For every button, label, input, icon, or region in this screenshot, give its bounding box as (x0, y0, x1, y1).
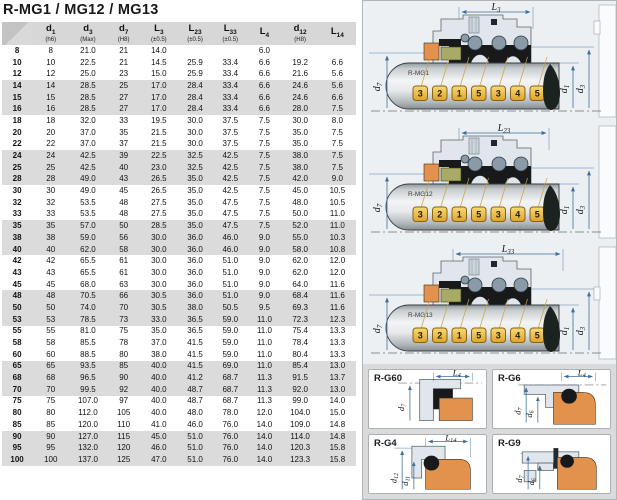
row-value-cell: 59.0 (213, 337, 247, 349)
row-value-cell: 99.5 (69, 384, 106, 396)
dim-label-d3: d3 (575, 84, 587, 93)
header-row: d1 (h6) d3 (Max) d7 (H8) L3 (±0.5) L23 (… (2, 22, 356, 45)
row-value-cell: 49.0 (69, 174, 106, 186)
row-value-cell: 14.0 (141, 45, 177, 57)
row-value-cell: 28.5 (141, 220, 177, 232)
row-value-cell: 63 (107, 279, 141, 291)
row-value-cell: 38.0 (141, 349, 177, 361)
row-value-cell (177, 45, 213, 57)
row-value-cell: 28.5 (69, 80, 106, 92)
table-row: 686896.59040.041.268.711.391.513.7 (2, 372, 356, 384)
row-value-cell: 72.3 (282, 314, 319, 326)
row-value-cell: 33.4 (213, 92, 247, 104)
row-value-cell: 85.4 (282, 361, 319, 373)
table-row: 8585120.011041.046.076.014.0109.014.8 (2, 419, 356, 431)
row-value-cell: 64.0 (282, 279, 319, 291)
row-value-cell: 38.0 (177, 302, 213, 314)
row-size-cell: 65 (2, 361, 32, 373)
face-ring (441, 168, 461, 181)
row-value-cell: 32 (32, 197, 69, 209)
row-value-cell: 60 (32, 349, 69, 361)
row-value-cell: 85 (32, 419, 69, 431)
row-value-cell: 36.0 (177, 244, 213, 256)
row-value-cell: 33.4 (213, 68, 247, 80)
row-value-cell: 35.0 (141, 326, 177, 338)
part-number-label: 1 (457, 331, 462, 341)
row-value-cell: 10.5 (319, 197, 356, 209)
row-value-cell: 19.5 (141, 115, 177, 127)
row-value-cell: 22.5 (141, 150, 177, 162)
row-value-cell: 49.0 (69, 185, 106, 197)
row-value-cell: 6.6 (247, 92, 281, 104)
row-value-cell: 25.9 (177, 68, 213, 80)
row-value-cell: 13.0 (319, 384, 356, 396)
part-number-label: 4 (515, 331, 520, 341)
row-value-cell: 36.0 (177, 255, 213, 267)
col-header-l14: L14 (319, 22, 356, 45)
row-size-cell: 55 (2, 326, 32, 338)
row-value-cell: 20 (32, 127, 69, 139)
row-value-cell: 17.0 (141, 80, 177, 92)
row-value-cell: 55 (32, 326, 69, 338)
col-header-l23: L23 (±0.5) (177, 22, 213, 45)
row-value-cell: 12.0 (319, 267, 356, 279)
table-row: 101022.52114.525.933.46.619.26.6 (2, 57, 356, 69)
face-ring (441, 289, 461, 302)
row-value-cell: 7.5 (247, 150, 281, 162)
row-value-cell: 41.5 (177, 349, 213, 361)
row-value-cell: 53 (32, 314, 69, 326)
row-value-cell: 13.3 (319, 326, 356, 338)
row-size-cell: 45 (2, 279, 32, 291)
part-number-label: 5 (535, 210, 540, 220)
row-value-cell: 30.0 (177, 139, 213, 151)
row-value-cell: 107.0 (69, 396, 106, 408)
table-row: 707099.59240.048.768.711.392.013.0 (2, 384, 356, 396)
table-row: 8821.02114.06.0 (2, 45, 356, 57)
row-value-cell: 41.5 (177, 337, 213, 349)
row-value-cell: 28.5 (69, 92, 106, 104)
dim-label-d7: d7 (372, 203, 384, 212)
row-value-cell: 109.0 (282, 419, 319, 431)
dim-label-d7: d7 (512, 407, 524, 415)
row-value-cell: 33 (107, 115, 141, 127)
row-value-cell: 50.5 (213, 302, 247, 314)
row-value-cell: 65 (32, 361, 69, 373)
row-value-cell: 28.4 (177, 103, 213, 115)
dim-label-l14: L14 (444, 435, 456, 444)
row-value-cell: 42 (32, 255, 69, 267)
dim-label-d12: d12 (388, 473, 400, 483)
row-value-cell: 7.5 (247, 174, 281, 186)
set-screw (491, 140, 497, 146)
dim-label-l33: L33 (501, 244, 515, 256)
table-row: 535378.57333.036.559.011.072.312.3 (2, 314, 356, 326)
row-value-cell: 40.0 (141, 361, 177, 373)
row-value-cell: 115 (107, 431, 141, 443)
table-row: 323253.54827.535.047.57.548.010.5 (2, 197, 356, 209)
table-row: 606088.58038.041.559.011.080.413.3 (2, 349, 356, 361)
row-value-cell: 25.9 (177, 57, 213, 69)
row-value-cell: 14.5 (141, 57, 177, 69)
row-value-cell: 48 (107, 197, 141, 209)
row-value-cell: 32.5 (177, 150, 213, 162)
spec-table: d1 (h6) d3 (Max) d7 (H8) L3 (±0.5) L23 (… (2, 22, 356, 466)
row-value-cell: 26.5 (141, 185, 177, 197)
row-size-cell: 70 (2, 384, 32, 396)
row-value-cell: 96.5 (69, 372, 106, 384)
row-value-cell: 35.0 (177, 174, 213, 186)
table-row: 100100137.012547.051.076.014.0123.315.8 (2, 454, 356, 466)
row-size-cell: 43 (2, 267, 32, 279)
row-value-cell: 120 (107, 442, 141, 454)
row-value-cell: 112.0 (69, 407, 106, 419)
row-value-cell: 28 (32, 174, 69, 186)
seat-ring (424, 285, 439, 302)
table-row: 282849.04326.535.042.57.542.09.0 (2, 174, 356, 186)
row-value-cell: 11.0 (247, 337, 281, 349)
col-header-l33: L33 (±0.5) (213, 22, 247, 45)
dim-label-d7: d7 (372, 324, 384, 333)
row-value-cell: 6.0 (247, 45, 281, 57)
table-row: 9090127.011545.051.076.014.0114.014.8 (2, 431, 356, 443)
row-value-cell: 93.5 (69, 361, 106, 373)
row-value-cell: 7.5 (319, 103, 356, 115)
row-value-cell: 42.5 (213, 185, 247, 197)
row-value-cell: 7.5 (319, 139, 356, 151)
row-value-cell: 17.0 (141, 103, 177, 115)
row-value-cell: 7.5 (319, 162, 356, 174)
row-value-cell: 35.0 (282, 139, 319, 151)
row-value-cell: 15.0 (141, 68, 177, 80)
table-row: 7575107.09740.048.768.711.399.014.0 (2, 396, 356, 408)
row-value-cell: 51.0 (177, 431, 213, 443)
row-value-cell: 13.7 (319, 372, 356, 384)
row-value-cell: 40.0 (141, 372, 177, 384)
row-value-cell: 11.6 (319, 279, 356, 291)
row-value-cell: 35.0 (177, 185, 213, 197)
row-value-cell: 30.0 (141, 232, 177, 244)
row-value-cell: 56 (107, 232, 141, 244)
row-size-cell: 60 (2, 349, 32, 361)
row-value-cell: 75 (107, 326, 141, 338)
row-size-cell: 33 (2, 209, 32, 221)
row-value-cell: 28.4 (177, 80, 213, 92)
row-value-cell: 11.3 (247, 396, 281, 408)
row-value-cell: 24.6 (282, 80, 319, 92)
row-value-cell: 75 (32, 396, 69, 408)
row-value-cell: 48 (107, 209, 141, 221)
row-value-cell: 30.0 (177, 127, 213, 139)
row-value-cell: 99.0 (282, 396, 319, 408)
row-size-cell: 20 (2, 127, 32, 139)
row-value-cell: 41.0 (141, 419, 177, 431)
row-value-cell: 33.4 (213, 103, 247, 115)
table-row: 303049.04526.535.042.57.545.010.5 (2, 185, 356, 197)
col-header-l3: L3 (±0.5) (141, 22, 177, 45)
row-value-cell: 125 (107, 454, 141, 466)
row-value-cell: 59.0 (213, 349, 247, 361)
row-value-cell: 47.5 (213, 197, 247, 209)
row-size-cell: 12 (2, 68, 32, 80)
panel-r-g4: R-G4 L14 d12 d11 (368, 434, 487, 494)
row-value-cell: 48.7 (177, 396, 213, 408)
dim-label-d1: d1 (559, 206, 571, 215)
row-value-cell: 10.3 (319, 232, 356, 244)
row-value-cell: 12.0 (319, 255, 356, 267)
table-row: 353557.05028.535.047.57.552.011.0 (2, 220, 356, 232)
row-value-cell: 58 (32, 337, 69, 349)
row-value-cell: 38.0 (282, 162, 319, 174)
row-value-cell: 22.5 (69, 57, 106, 69)
row-value-cell: 47.5 (213, 220, 247, 232)
row-value-cell: 132.0 (69, 442, 106, 454)
part-number-label: 2 (437, 210, 442, 220)
row-value-cell: 68.0 (69, 279, 106, 291)
row-value-cell: 15 (32, 92, 69, 104)
table-row: 161628.52717.028.433.46.628.07.5 (2, 103, 356, 115)
row-value-cell: 66 (107, 290, 141, 302)
table-row: 151528.52717.028.433.46.624.66.6 (2, 92, 356, 104)
row-value-cell: 7.5 (247, 162, 281, 174)
row-value-cell: 7.5 (247, 139, 281, 151)
row-value-cell: 76.0 (213, 442, 247, 454)
panel-title: R-G4 (374, 438, 397, 449)
row-value-cell: 68 (32, 372, 69, 384)
row-value-cell: 9.0 (247, 255, 281, 267)
row-value-cell: 48.7 (177, 384, 213, 396)
face-ring (441, 47, 461, 60)
row-value-cell: 11.3 (247, 384, 281, 396)
row-value-cell: 46.0 (213, 232, 247, 244)
dim-label-d1: d1 (559, 85, 571, 94)
part-number-label: 3 (496, 210, 501, 220)
row-value-cell: 30.0 (282, 115, 319, 127)
row-value-cell: 37.5 (213, 127, 247, 139)
row-value-cell: 47.5 (213, 209, 247, 221)
row-value-cell: 104.0 (282, 407, 319, 419)
col-header-l4: L4 (247, 22, 281, 45)
row-value-cell: 50 (107, 220, 141, 232)
row-size-cell: 53 (2, 314, 32, 326)
row-value-cell: 90 (32, 431, 69, 443)
row-value-cell: 21 (107, 57, 141, 69)
row-value-cell: 35.0 (177, 220, 213, 232)
row-value-cell: 120.3 (282, 442, 319, 454)
row-value-cell: 17.0 (141, 92, 177, 104)
row-size-cell: 15 (2, 92, 32, 104)
row-value-cell (319, 45, 356, 57)
row-value-cell: 18 (32, 115, 69, 127)
seat-ring (424, 43, 439, 60)
row-value-cell: 22 (32, 139, 69, 151)
row-value-cell: 13.3 (319, 349, 356, 361)
row-value-cell: 11.6 (319, 290, 356, 302)
seal-diagram-mg13: R-MG13 3215345 L33 d7 d1 d3 (369, 244, 616, 359)
row-value-cell: 36.0 (177, 267, 213, 279)
panel-title: R-G60 (374, 373, 402, 384)
row-value-cell: 46.0 (177, 419, 213, 431)
row-value-cell: 105 (107, 407, 141, 419)
row-size-cell: 68 (2, 372, 32, 384)
row-value-cell: 50.0 (282, 209, 319, 221)
row-value-cell: 81.0 (69, 326, 106, 338)
row-value-cell: 37.0 (141, 337, 177, 349)
row-value-cell: 7.5 (319, 127, 356, 139)
row-value-cell: 33.4 (213, 57, 247, 69)
row-size-cell: 16 (2, 103, 32, 115)
dim-label-d3: d3 (575, 205, 587, 214)
row-size-cell: 42 (2, 255, 32, 267)
row-value-cell: 48 (32, 290, 69, 302)
diagram-panel: R-MG1 3215345 L3 d7 d1 d3 (362, 0, 617, 500)
row-value-cell: 14.0 (247, 454, 281, 466)
dim-label-l23: L23 (497, 123, 511, 135)
row-value-cell: 26.5 (141, 174, 177, 186)
seal-model-label: R-MG13 (408, 312, 433, 319)
part-number-label: 5 (535, 89, 540, 99)
row-value-cell: 40.0 (141, 384, 177, 396)
row-value-cell: 110 (107, 419, 141, 431)
row-value-cell: 6.6 (247, 57, 281, 69)
row-size-cell: 38 (2, 232, 32, 244)
row-value-cell: 80.4 (282, 349, 319, 361)
row-value-cell: 40 (32, 244, 69, 256)
row-value-cell: 23.0 (141, 162, 177, 174)
part-number-label: 5 (476, 210, 481, 220)
row-value-cell: 42.0 (282, 174, 319, 186)
row-value-cell: 11.0 (319, 220, 356, 232)
row-value-cell: 42.5 (213, 162, 247, 174)
row-value-cell: 114.0 (282, 431, 319, 443)
table-row: 222237.03721.530.037.57.535.07.5 (2, 139, 356, 151)
row-value-cell: 123.3 (282, 454, 319, 466)
table-row: 656593.58540.041.569.011.085.413.0 (2, 361, 356, 373)
panel-r-g60: R-G60 L4 d7 (368, 369, 487, 429)
dim-label-d3: d3 (575, 326, 587, 335)
row-value-cell: 14.8 (319, 419, 356, 431)
row-value-cell: 46.0 (141, 442, 177, 454)
row-value-cell: 25 (32, 162, 69, 174)
table-row: 8080112.010540.048.078.012.0104.015.0 (2, 407, 356, 419)
row-value-cell: 61 (107, 267, 141, 279)
set-screw (491, 19, 497, 25)
row-value-cell: 28.5 (69, 103, 106, 115)
row-value-cell: 91.5 (282, 372, 319, 384)
dim-label-l4: L4 (577, 370, 586, 379)
table-row: 9595132.012046.051.076.014.0120.315.8 (2, 442, 356, 454)
row-value-cell: 78.4 (282, 337, 319, 349)
row-value-cell: 40.0 (141, 407, 177, 419)
row-value-cell: 15.8 (319, 442, 356, 454)
row-value-cell: 11.0 (247, 349, 281, 361)
part-number-label: 4 (515, 210, 520, 220)
row-value-cell: 70 (107, 302, 141, 314)
row-value-cell: 41.5 (177, 361, 213, 373)
set-screw (491, 261, 497, 267)
row-size-cell: 48 (2, 290, 32, 302)
row-value-cell: 70.5 (69, 290, 106, 302)
row-value-cell: 30.0 (141, 279, 177, 291)
table-row: 454568.06330.036.051.09.064.011.6 (2, 279, 356, 291)
page-title: R-MG1 / MG12 / MG13 (3, 2, 159, 18)
row-value-cell: 14.0 (247, 442, 281, 454)
row-value-cell: 53.5 (69, 209, 106, 221)
table-row: 404062.05830.036.046.09.058.010.8 (2, 244, 356, 256)
row-value-cell: 76.0 (213, 431, 247, 443)
row-value-cell: 14 (32, 80, 69, 92)
row-value-cell: 30.0 (141, 244, 177, 256)
table-row: 181832.03319.530.037.57.530.08.0 (2, 115, 356, 127)
row-value-cell: 51.0 (213, 279, 247, 291)
row-value-cell: 11.6 (319, 302, 356, 314)
row-value-cell: 50 (32, 302, 69, 314)
part-number-label: 3 (418, 210, 423, 220)
spec-table-body: 8821.02114.06.0101022.52114.525.933.46.6… (2, 45, 356, 466)
row-value-cell: 27.5 (141, 197, 177, 209)
row-value-cell: 9.0 (247, 232, 281, 244)
row-value-cell: 51.0 (177, 454, 213, 466)
row-value-cell: 36.0 (177, 290, 213, 302)
row-value-cell: 52.0 (282, 220, 319, 232)
row-value-cell: 16 (32, 103, 69, 115)
row-value-cell: 27 (107, 92, 141, 104)
row-value-cell: 45.0 (141, 431, 177, 443)
dim-label-d1: d1 (559, 327, 571, 336)
part-number-label: 1 (457, 210, 462, 220)
row-value-cell: 27.5 (141, 209, 177, 221)
row-value-cell: 95 (32, 442, 69, 454)
row-value-cell: 51.0 (213, 267, 247, 279)
row-value-cell: 40.0 (141, 396, 177, 408)
row-size-cell: 10 (2, 57, 32, 69)
row-value-cell: 65.5 (69, 255, 106, 267)
row-value-cell: 8.0 (319, 115, 356, 127)
row-value-cell: 76.0 (213, 419, 247, 431)
dim-label-l3: L3 (490, 2, 501, 14)
seal-model-label: R-MG12 (408, 191, 433, 198)
row-value-cell: 6.6 (319, 57, 356, 69)
row-value-cell: 46.0 (213, 244, 247, 256)
row-size-cell: 18 (2, 115, 32, 127)
row-size-cell: 30 (2, 185, 32, 197)
row-value-cell: 32.5 (177, 162, 213, 174)
row-value-cell: 21.0 (69, 45, 106, 57)
row-value-cell (282, 45, 319, 57)
row-value-cell: 38.0 (282, 150, 319, 162)
row-value-cell: 21.6 (282, 68, 319, 80)
table-row: 424265.56130.036.051.09.062.012.0 (2, 255, 356, 267)
row-value-cell: 40 (107, 162, 141, 174)
row-value-cell: 51.0 (213, 290, 247, 302)
table-row: 333353.54827.535.047.57.550.011.0 (2, 209, 356, 221)
row-value-cell: 62.0 (282, 267, 319, 279)
row-value-cell: 23 (107, 68, 141, 80)
panel-title: R-G6 (498, 373, 521, 384)
row-value-cell: 9.0 (247, 279, 281, 291)
row-size-cell: 35 (2, 220, 32, 232)
table-row: 242442.53922.532.542.57.538.07.5 (2, 150, 356, 162)
row-value-cell: 35.0 (177, 197, 213, 209)
row-value-cell: 85.5 (69, 337, 106, 349)
table-row: 555581.07535.036.559.011.075.413.3 (2, 326, 356, 338)
row-value-cell: 13.0 (319, 361, 356, 373)
row-value-cell: 62.0 (282, 255, 319, 267)
row-value-cell: 58.0 (282, 244, 319, 256)
row-value-cell (213, 45, 247, 57)
col-header-d3: d3 (Max) (69, 22, 106, 45)
row-value-cell: 37 (107, 139, 141, 151)
